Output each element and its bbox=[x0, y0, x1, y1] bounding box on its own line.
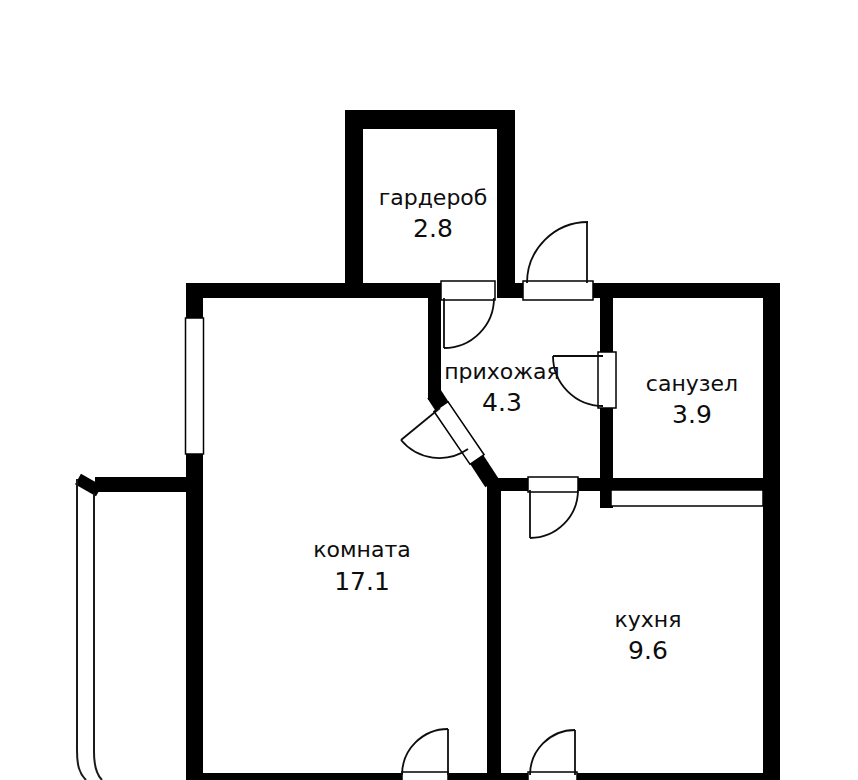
sanuzel-door-opening bbox=[598, 352, 616, 408]
room-area-garderob: 2.8 bbox=[413, 214, 453, 243]
room-label-komnata: комната bbox=[313, 537, 411, 562]
room-area-komnata: 17.1 bbox=[334, 567, 390, 596]
wall-balcony-top bbox=[95, 477, 188, 492]
room-area-sanuzel: 3.9 bbox=[672, 400, 712, 429]
wall-top-west bbox=[186, 283, 441, 298]
room-area-kuhnya: 9.6 bbox=[628, 636, 668, 665]
wall-bottom-mid bbox=[448, 773, 528, 780]
wall-hall-bottom-east bbox=[578, 478, 775, 491]
wall-bottom-west bbox=[203, 773, 402, 780]
room-area-prihozhaya: 4.3 bbox=[482, 388, 522, 417]
komnata-balcony-door-opening bbox=[402, 772, 448, 780]
room-label-prihozhaya: прихожая bbox=[444, 359, 560, 384]
wall-kitchen-separator bbox=[487, 478, 501, 780]
wall-bottom-east bbox=[577, 773, 773, 780]
kitchen-balcony-door-opening bbox=[528, 772, 577, 780]
room-label-sanuzel: санузел bbox=[646, 371, 738, 396]
sanuzel-ledge-strip bbox=[611, 490, 763, 506]
floor-plan-page: гардероб 2.8 прихожая 4.3 санузел 3.9 ко… bbox=[0, 0, 858, 780]
entrance-door-opening bbox=[523, 281, 593, 300]
window-komnata-left bbox=[186, 318, 204, 454]
wall-garderob-left bbox=[345, 110, 363, 298]
room-label-kuhnya: кухня bbox=[615, 607, 682, 632]
garderob-door-opening bbox=[441, 281, 495, 300]
room-label-garderob: гардероб bbox=[379, 185, 488, 210]
kitchen-door-opening bbox=[528, 477, 578, 492]
floor-plan: гардероб 2.8 прихожая 4.3 санузел 3.9 ко… bbox=[0, 0, 858, 780]
wall-garderob-right bbox=[497, 110, 515, 298]
wall-prihozhaya-left bbox=[428, 296, 441, 400]
wall-outer-right bbox=[763, 283, 780, 780]
wall-garderob-top bbox=[345, 110, 515, 129]
wall-top-east bbox=[593, 283, 780, 298]
